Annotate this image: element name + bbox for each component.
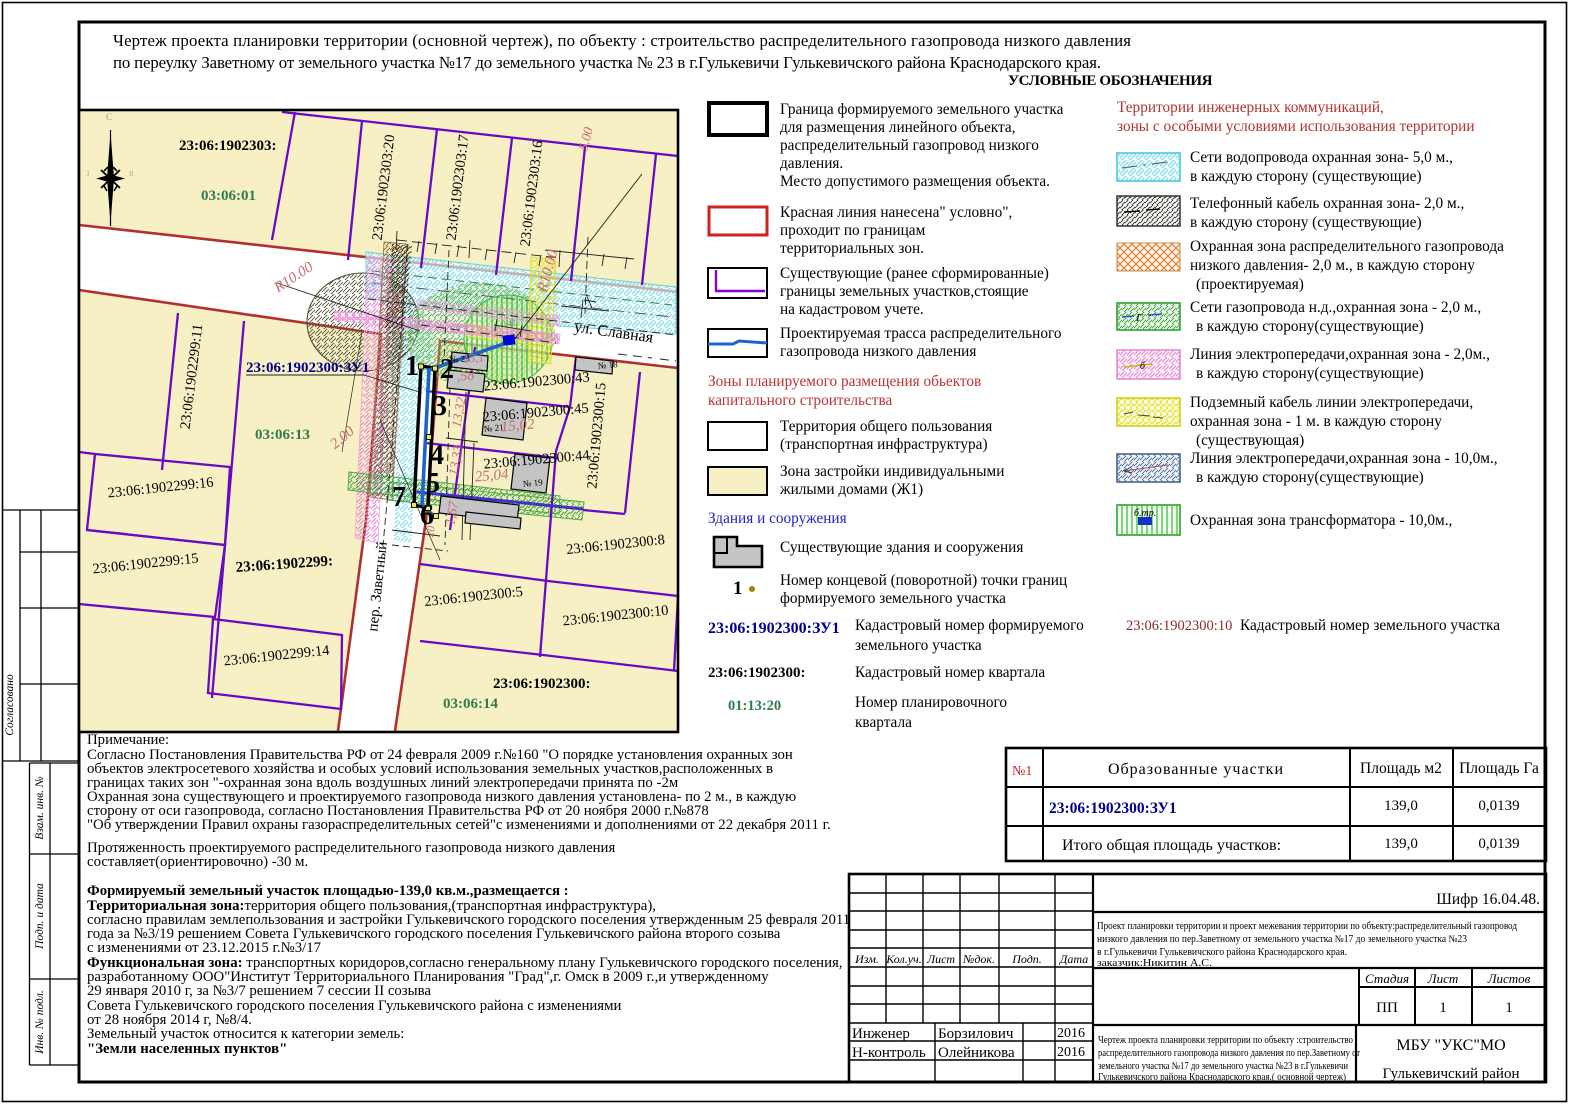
svg-text:в каждую сторону (существующие: в каждую сторону (существующие): [1190, 214, 1422, 231]
svg-text:с изменениями от 23.12.2015 г.: с изменениями от 23.12.2015 г.№3/17: [87, 940, 321, 956]
svg-text:Дата: Дата: [1059, 952, 1088, 966]
svg-text:в каждую сторону(существующие): в каждую сторону(существующие): [1196, 469, 1424, 486]
svg-text:б.тр.: б.тр.: [1134, 508, 1156, 519]
svg-text:Линия электропередачи,охранная: Линия электропередачи,охранная зона - 10…: [1190, 450, 1498, 467]
svg-text:Сети водопровода охранная зона: Сети водопровода охранная зона- 5,0 м.,: [1190, 149, 1453, 166]
svg-text:№1: №1: [1012, 764, 1032, 779]
svg-text:Стадия: Стадия: [1365, 971, 1409, 986]
svg-text:1: 1: [733, 578, 743, 599]
svg-text:7: 7: [392, 482, 406, 513]
svg-text:С: С: [106, 112, 112, 122]
svg-text:15,02: 15,02: [500, 417, 536, 436]
svg-text:23:06:1902300:ЗУ1: 23:06:1902300:ЗУ1: [1049, 800, 1177, 817]
svg-text:139,0: 139,0: [1384, 836, 1418, 852]
svg-text:Номер планировочного: Номер планировочного: [855, 694, 1007, 711]
svg-text:охранная зона - 1 м. в каждую: охранная зона - 1 м. в каждую сторону: [1190, 413, 1442, 430]
svg-text:(существующая): (существующая): [1196, 432, 1304, 449]
svg-text:на кадастровом учете.: на кадастровом учете.: [780, 301, 924, 318]
svg-text:земельного участка: земельного участка: [855, 637, 982, 654]
svg-text:0,0139: 0,0139: [1478, 836, 1519, 852]
svg-text:139,0: 139,0: [1384, 798, 1418, 814]
svg-text:МБУ "УКС"МО: МБУ "УКС"МО: [1396, 1037, 1505, 1054]
svg-text:5: 5: [426, 468, 440, 499]
svg-text:Инженер: Инженер: [852, 1026, 910, 1042]
svg-text:№док.: №док.: [962, 952, 995, 966]
svg-text:Сети газопровода н.д.,охранная: Сети газопровода н.д.,охранная зона - 2,…: [1190, 299, 1481, 316]
svg-text:Существующие здания и сооружен: Существующие здания и сооружения: [780, 539, 1023, 556]
svg-text:Здания и сооружения: Здания и сооружения: [708, 510, 847, 527]
svg-text:Шифр 16.04.48.: Шифр 16.04.48.: [1436, 891, 1540, 908]
svg-text:низкого давления по пер.Заветн: низкого давления по пер.Заветному от зем…: [1097, 934, 1467, 945]
svg-text:2016: 2016: [1057, 1045, 1085, 1060]
svg-text:Г: Г: [1135, 312, 1143, 324]
svg-text:Проект планировки территории и: Проект планировки территории и проект ме…: [1097, 921, 1517, 932]
svg-text:№ 18: № 18: [597, 359, 618, 371]
svg-text:(проектируемая): (проектируемая): [1196, 276, 1304, 293]
svg-text:в каждую сторону(существующие): в каждую сторону(существующие): [1196, 365, 1424, 382]
svg-text:Зона застройки индивидуальными: Зона застройки индивидуальными: [780, 463, 1004, 480]
svg-text:Кадастровый номер формируемог: Кадастровый номер формируемого: [855, 617, 1084, 634]
svg-text:земельного участка №17 до земе: земельного участка №17 до земельного уча…: [1098, 1061, 1348, 1072]
svg-text:Граница формируемого земельног: Граница формируемого земельного участка: [780, 101, 1064, 118]
svg-text:Номер концевой (поворотной) то: Номер концевой (поворотной) точки границ: [780, 572, 1067, 589]
svg-text:Гулькевичского района Краснода: Гулькевичского района Краснодарского кра…: [1098, 1072, 1346, 1083]
svg-text:15,1: 15,1: [463, 350, 485, 366]
svg-text:Чертеж проекта планировки терр: Чертеж проекта планировки территории по …: [1098, 1035, 1353, 1046]
svg-text:В: В: [129, 170, 134, 178]
svg-text:29 января 2010 г, за №3/7 реше: 29 января 2010 г, за №3/7 решением 7 сес…: [87, 983, 431, 999]
svg-text:Подземный кабель линии электр: Подземный кабель линии электропередачи,: [1190, 394, 1473, 411]
svg-text:Чертеж проекта планировки терр: Чертеж проекта планировки территории (ос…: [113, 31, 1131, 50]
svg-text:Инв. № подл.: Инв. № подл.: [34, 990, 46, 1055]
svg-text:Подп.: Подп.: [1011, 952, 1042, 966]
svg-text:03:06:13: 03:06:13: [255, 427, 310, 443]
svg-text:,58: ,58: [456, 368, 475, 384]
svg-text:Борзилович: Борзилович: [938, 1026, 1014, 1042]
svg-text:03:06:14: 03:06:14: [443, 696, 498, 712]
svg-text:Площадь м2: Площадь м2: [1360, 760, 1442, 777]
svg-text:Кадастровый номер земельного: Кадастровый номер земельного участка: [1240, 617, 1500, 634]
svg-text:25,04: 25,04: [474, 467, 510, 486]
svg-text:распределительного газопровода: распределительного газопровода низкого д…: [1098, 1048, 1360, 1059]
svg-text:жилыми домами (Ж1): жилыми домами (Ж1): [779, 481, 923, 498]
svg-text:в каждую сторону(существующие): в каждую сторону(существующие): [1196, 318, 1424, 335]
svg-text:Формируемый земельный участок: Формируемый земельный участок площадью-1…: [87, 883, 569, 899]
svg-text:Охранная зона распределительно: Охранная зона распределительного газопро…: [1190, 238, 1504, 255]
svg-text:давления.: давления.: [780, 155, 843, 172]
svg-text:Подп. и дата: Подп. и дата: [34, 883, 46, 950]
svg-text:Кадастровый номер квартала: Кадастровый номер квартала: [855, 664, 1045, 681]
svg-text:Территория общего пользования: Территория общего пользования: [780, 418, 992, 435]
svg-text:газопровода низкого давления: газопровода низкого давления: [780, 343, 976, 360]
svg-text:Гулькевичский район: Гулькевичский район: [1383, 1066, 1520, 1082]
svg-text:(транспортная инфраструктура): (транспортная инфраструктура): [780, 436, 988, 453]
svg-text:23:06:1902300:ЗУ1: 23:06:1902300:ЗУ1: [246, 360, 370, 376]
svg-text:Территории инженерных коммуник: Территории инженерных коммуникаций,: [1117, 99, 1384, 116]
svg-text:квартала: квартала: [855, 714, 912, 731]
svg-text:0,45: 0,45: [501, 319, 516, 329]
svg-text:для размещения линейного объек: для размещения линейного объекта,: [780, 119, 1015, 136]
svg-text:4: 4: [430, 440, 444, 471]
svg-text:Взам. инв. №: Взам. инв. №: [34, 776, 46, 840]
svg-text:3: 3: [433, 391, 447, 422]
svg-text:в г.Гулькевичи Гулькевичского: в г.Гулькевичи Гулькевичского района Кра…: [1097, 947, 1347, 958]
svg-text:Лист: Лист: [926, 952, 955, 966]
svg-text:распределительный газопровод н: распределительный газопровод низкого: [780, 137, 1039, 154]
svg-text:Существующие (ранее сформирова: Существующие (ранее сформированные): [780, 265, 1049, 282]
svg-text:капитального строительства: капитального строительства: [708, 392, 892, 409]
svg-text:23:06:1902303:: 23:06:1902303:: [179, 138, 277, 154]
svg-text:Место допустимого размещения о: Место допустимого размещения объекта.: [780, 173, 1050, 190]
svg-text:составляет(ориентировочно) -30: составляет(ориентировочно) -30 м.: [87, 854, 308, 870]
svg-text:0,0139: 0,0139: [1478, 798, 1519, 814]
svg-text:Изм.: Изм.: [854, 952, 879, 966]
svg-text:1: 1: [1439, 1000, 1447, 1016]
svg-text:территориальных зон.: территориальных зон.: [780, 240, 924, 257]
svg-text:23:06:1902300:: 23:06:1902300:: [708, 665, 806, 681]
svg-text:23:06:1902300:ЗУ1: 23:06:1902300:ЗУ1: [708, 620, 840, 637]
svg-text:Итого общая площадь участков:: Итого общая площадь участков:: [1062, 837, 1281, 854]
svg-text:Площадь Га: Площадь Га: [1459, 760, 1539, 777]
svg-text:1: 1: [1505, 1000, 1513, 1016]
svg-text:в каждую сторону (существующие: в каждую сторону (существующие): [1190, 168, 1422, 185]
svg-text:1: 1: [405, 351, 419, 382]
svg-text:Н-контроль: Н-контроль: [852, 1045, 926, 1061]
svg-text:Листов: Листов: [1487, 971, 1531, 986]
svg-text:03:06:01: 03:06:01: [201, 188, 256, 204]
svg-text:Линия электропередачи,охранная: Линия электропередачи,охранная зона - 2,…: [1190, 346, 1490, 363]
svg-text:Лист: Лист: [1427, 971, 1458, 986]
svg-text:01:13:20: 01:13:20: [728, 698, 781, 714]
svg-text:ПП: ПП: [1376, 1000, 1398, 1016]
svg-text:Образованные участки: Образованные участки: [1108, 761, 1284, 778]
svg-text:проходит по границам: проходит по границам: [780, 222, 926, 239]
svg-text:"Об утверждении Правил охраны: "Об утверждении Правил охраны газораспре…: [87, 817, 831, 833]
svg-text:формируемого земельного участк: формируемого земельного участка: [780, 590, 1006, 607]
svg-text:23:06:1902300:10: 23:06:1902300:10: [1126, 618, 1232, 634]
svg-text:23:06:1902300:: 23:06:1902300:: [493, 676, 591, 692]
svg-text:Проектируемая трасса распредел: Проектируемая трасса распределительного: [780, 325, 1062, 342]
svg-text:границы земельных участков,сто: границы земельных участков,стоящие: [780, 283, 1029, 300]
svg-text:"Земли населенных пунктов": "Земли населенных пунктов": [87, 1041, 287, 1057]
svg-text:Примечание:: Примечание:: [87, 732, 169, 748]
svg-text:Земельный участок относится к: Земельный участок относится к категории …: [87, 1026, 404, 1042]
svg-text:З: З: [86, 170, 90, 178]
svg-text:Красная линия нанесена" услов: Красная линия нанесена" условно",: [780, 204, 1012, 221]
svg-text:№ 19: № 19: [522, 477, 543, 489]
svg-text:по переулку Заветному от земел: по переулку Заветному от земельного учас…: [113, 53, 1101, 72]
svg-text:УСЛОВНЫЕ ОБОЗНАЧЕНИЯ: УСЛОВНЫЕ ОБОЗНАЧЕНИЯ: [1008, 73, 1214, 89]
svg-text:Кол.уч.: Кол.уч.: [885, 952, 922, 966]
svg-text:Согласовано: Согласовано: [4, 674, 16, 736]
svg-text:заказчик:Никитин А.С.: заказчик:Никитин А.С.: [1097, 958, 1212, 969]
svg-text:Телефонный кабель охранная зон: Телефонный кабель охранная зона- 2,0 м.,: [1190, 195, 1464, 212]
svg-text:низкого давления- 2,0 м., в ка: низкого давления- 2,0 м., в каждую сторо…: [1190, 257, 1475, 274]
svg-text:Олейникова: Олейникова: [938, 1045, 1015, 1061]
svg-text:2016: 2016: [1057, 1026, 1085, 1041]
svg-text:зоны с особыми условиями испол: зоны с особыми условиями использования т…: [1117, 118, 1475, 135]
svg-text:Охранная зона трансформатора: Охранная зона трансформатора - 10,0м.,: [1190, 512, 1452, 529]
svg-text:Зоны планируемого размещения о: Зоны планируемого размещения обьектов: [708, 373, 981, 390]
